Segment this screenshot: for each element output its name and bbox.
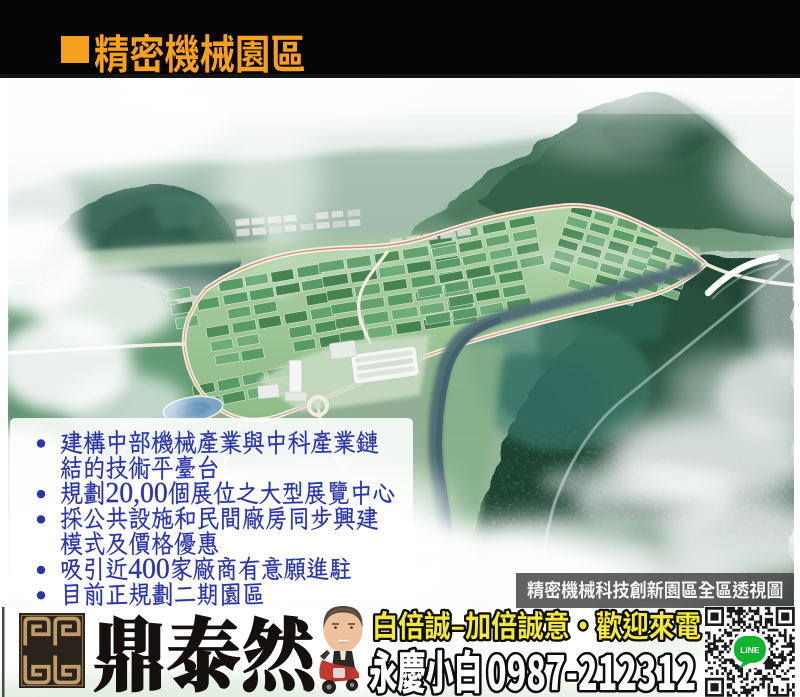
svg-text:LINE: LINE: [740, 645, 760, 655]
